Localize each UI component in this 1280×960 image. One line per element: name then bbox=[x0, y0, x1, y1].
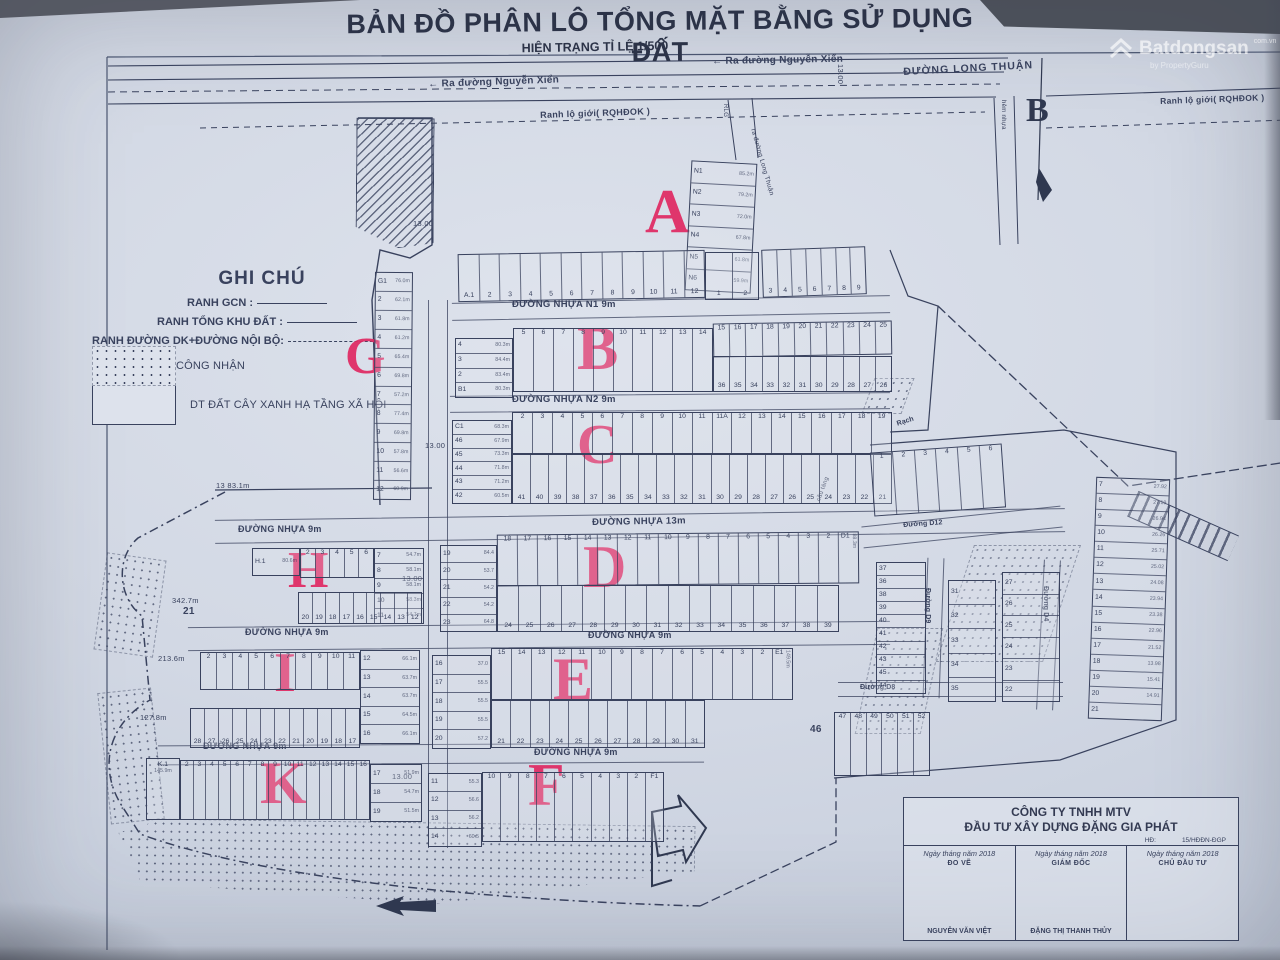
legend-swatch-cay-xanh: DT ĐẤT CÂY XANH HẠ TẦNG XÃ HỘI bbox=[92, 385, 422, 425]
lot-number: 19 bbox=[878, 414, 886, 421]
lot-number: N1 bbox=[694, 168, 703, 175]
lot-number: 8 bbox=[581, 330, 585, 337]
lot-number: F1 bbox=[650, 774, 658, 781]
lot-cell: 8 bbox=[698, 534, 718, 584]
lot-number: 7 bbox=[726, 535, 730, 542]
lot-cell: 11 bbox=[633, 329, 653, 391]
block-a-pair: 12 bbox=[705, 252, 759, 300]
lot-cell: 6 bbox=[593, 413, 613, 453]
lot-area: 73.3m bbox=[494, 452, 509, 457]
block-c-bottom: 4140393837363534333231302928272625242322… bbox=[512, 454, 892, 504]
lot-area: 64.8 bbox=[484, 620, 494, 625]
lot-number: 23 bbox=[847, 323, 855, 330]
lot-number: 10 bbox=[1097, 530, 1105, 537]
lot-area: 60.9m bbox=[393, 487, 408, 492]
lot-number: 27 bbox=[614, 739, 622, 746]
lot-cell: 30 bbox=[626, 586, 647, 631]
lot-cell: 39 bbox=[818, 586, 838, 631]
east-grid-a: 37363839404142434544 bbox=[876, 562, 926, 694]
lot-number: 2 bbox=[760, 650, 764, 657]
lot-number: 12 bbox=[309, 762, 317, 769]
lot-number: 33 bbox=[696, 623, 704, 630]
lot-number: 9 bbox=[631, 290, 635, 297]
lot-cell: 15 bbox=[367, 593, 381, 623]
lot-number: 20 bbox=[1092, 691, 1100, 698]
lot-cell: 29 bbox=[647, 701, 666, 747]
lot-cell: 38 bbox=[796, 586, 817, 631]
lot-number: 10 bbox=[488, 774, 496, 781]
lot-cell: 26 bbox=[876, 357, 891, 391]
signature-role: GIÁM ĐỐC bbox=[1052, 860, 1091, 867]
signature-col-giam-doc: Ngày tháng năm 2018 GIÁM ĐỐC ĐẶNG THỊ TH… bbox=[1016, 846, 1128, 940]
lot-cell: 31 bbox=[795, 357, 811, 391]
map-title: BẢN ĐỒ PHÂN LÔ TỔNG MẶT BẰNG SỬ DỤNG ĐẤT bbox=[330, 3, 991, 72]
lot-cell: 49 bbox=[867, 713, 883, 775]
lot-number: 17 bbox=[349, 739, 357, 746]
watermark-domain: com.vn bbox=[1254, 38, 1277, 45]
lot-cell: 877.4m bbox=[375, 405, 411, 424]
lot-cell: 19 bbox=[313, 593, 327, 623]
lot-number: 10 bbox=[376, 449, 384, 456]
lot-number: 2 bbox=[521, 414, 525, 421]
lot-number: B1 bbox=[458, 387, 466, 394]
label-hem-nhua: hẻm nhựa bbox=[1000, 100, 1006, 130]
lot-cell: 17 bbox=[346, 709, 359, 747]
lot-number: 40 bbox=[536, 495, 544, 502]
lot-cell: 3 bbox=[217, 653, 233, 689]
lot-number: 38 bbox=[803, 623, 811, 630]
hatched-parcel bbox=[355, 118, 434, 249]
lot-area: 61.8m bbox=[395, 317, 410, 322]
lot-cell: 3 bbox=[500, 254, 521, 300]
lot-number: 20 bbox=[798, 324, 806, 331]
lot-number: 19 bbox=[435, 717, 443, 724]
lot-number: 11 bbox=[431, 779, 438, 786]
lot-number: 2 bbox=[306, 550, 310, 557]
lot-number: 33 bbox=[951, 638, 959, 645]
lot-number: 3 bbox=[616, 774, 620, 781]
lot-area: 66.1m bbox=[402, 657, 417, 662]
lot-area: 84.4m bbox=[495, 358, 510, 363]
lot-cell: 14 bbox=[332, 761, 345, 819]
lot-area: 85.2m bbox=[739, 171, 754, 177]
lot-number: 38 bbox=[879, 592, 887, 599]
lot-cell: 25 bbox=[569, 701, 588, 747]
lot-number: 5 bbox=[254, 654, 258, 661]
lot-number: 23 bbox=[264, 739, 272, 746]
lot-area: 71.2m bbox=[494, 480, 509, 485]
lot-number: 35 bbox=[626, 495, 634, 502]
lot-cell: 27 bbox=[205, 709, 219, 747]
lot-number: 3 bbox=[508, 292, 512, 299]
lot-cell: 1751.9m bbox=[371, 765, 421, 784]
lot-number: 50 bbox=[886, 714, 894, 721]
signature-role: ĐO VẼ bbox=[947, 860, 971, 867]
lot-number: 46 bbox=[455, 438, 463, 445]
lot-cell: 24 bbox=[247, 709, 261, 747]
lot-number: 12 bbox=[738, 414, 746, 421]
lot-cell: 12 bbox=[618, 534, 638, 584]
lot-number: 13 bbox=[538, 650, 546, 657]
lot-number: 14 bbox=[778, 414, 786, 421]
lot-area: 83.4m bbox=[495, 373, 510, 378]
lot-area: 80.3m bbox=[495, 343, 510, 348]
lot-cell: 35 bbox=[732, 586, 753, 631]
lot-cell: 32 bbox=[779, 357, 795, 391]
lot-area: 54.7m bbox=[404, 790, 419, 795]
lot-cell: 30 bbox=[712, 455, 730, 503]
lot-number: 15 bbox=[363, 712, 371, 719]
lot-cell: 6 bbox=[673, 649, 693, 699]
lot-number: 11 bbox=[644, 535, 651, 542]
lot-number: 9 bbox=[857, 286, 861, 293]
block-i-right: 1266.1m1363.7m1463.7m1564.5m1666.1m bbox=[360, 650, 420, 744]
lot-area: 14.91 bbox=[1146, 693, 1159, 699]
block-f-row: 1098765432F1 bbox=[482, 772, 664, 842]
lot-number: 29 bbox=[611, 623, 619, 630]
lot-area: 55.5 bbox=[478, 681, 488, 686]
lot-number: 11A bbox=[716, 414, 728, 421]
lot-number: 17 bbox=[435, 680, 443, 687]
lot-cell: 27 bbox=[766, 455, 784, 503]
lot-cell: 2057.2 bbox=[433, 730, 490, 748]
lot-cell: 9 bbox=[850, 247, 865, 293]
lot-cell: 14 bbox=[578, 535, 598, 585]
lot-number: 19 bbox=[315, 615, 323, 622]
lot-number: G1 bbox=[378, 278, 387, 285]
lot-number: 13 bbox=[363, 675, 371, 682]
street-label-9m-2: ĐƯỜNG NHỰA 9m bbox=[245, 627, 329, 637]
lot-number: 1 bbox=[717, 291, 721, 298]
block-c-left: C168.3m4667.9m4573.3m4471.8m4371.2m4260.… bbox=[452, 420, 512, 504]
lot-number: 18 bbox=[1093, 659, 1101, 666]
lot-number: 35 bbox=[951, 686, 959, 693]
lot-number: D1 bbox=[841, 534, 850, 541]
lot-cell: 11 bbox=[693, 413, 713, 453]
lot-number: 9 bbox=[318, 654, 322, 661]
lot-cell: 34 bbox=[949, 654, 995, 678]
lot-cell: 24 bbox=[498, 586, 519, 631]
lot-number: 21 bbox=[497, 739, 505, 746]
lot-number: 8 bbox=[842, 286, 846, 293]
lot-cell: 21 bbox=[1089, 703, 1161, 721]
lot-number: 6 bbox=[270, 654, 274, 661]
lot-cell: 15 bbox=[792, 413, 812, 453]
lot-number: 30 bbox=[632, 623, 640, 630]
lot-cell: 23 bbox=[1003, 659, 1059, 681]
lot-cell: 2053.7 bbox=[441, 563, 496, 580]
lot-number: 12 bbox=[376, 487, 384, 494]
lot-number: N4 bbox=[690, 233, 699, 240]
lot-cell: 14 bbox=[693, 329, 712, 391]
lot-number: 21 bbox=[815, 324, 823, 331]
lot-cell: 16 bbox=[354, 593, 368, 623]
lot-number: 12 bbox=[659, 330, 667, 337]
lot-number: 4 bbox=[335, 550, 339, 557]
lot-number: 29 bbox=[734, 495, 742, 502]
lot-cell: 33 bbox=[949, 629, 995, 653]
lot-area: 53.7 bbox=[484, 569, 494, 574]
block-i-top: 234567891011 bbox=[200, 652, 360, 690]
lot-cell: 52 bbox=[914, 713, 929, 775]
lot-cell: 22 bbox=[1003, 681, 1059, 702]
lot-area: 67.9m bbox=[494, 439, 509, 444]
lot-number: 4 bbox=[720, 650, 724, 657]
lot-cell: 858.1m bbox=[375, 564, 423, 579]
lot-number: 8 bbox=[1098, 498, 1102, 505]
lot-cell: 28 bbox=[191, 709, 205, 747]
lot-number: 7 bbox=[286, 654, 290, 661]
block-e-left: 1637.01755.51855.51955.52057.2 bbox=[432, 655, 491, 749]
lot-cell: 22 bbox=[827, 322, 844, 354]
lot-cell: 24 bbox=[1003, 638, 1059, 660]
lot-number: 28 bbox=[752, 495, 760, 502]
lot-number: 45 bbox=[455, 452, 463, 459]
lot-number: 7 bbox=[561, 330, 565, 337]
lot-number: 2 bbox=[458, 372, 462, 379]
lot-cell: 31 bbox=[693, 455, 711, 503]
lot-number: 9 bbox=[1098, 514, 1102, 521]
lot-number: 13 bbox=[758, 414, 766, 421]
lot-cell: 565.4m bbox=[375, 349, 411, 368]
lot-cell: 37 bbox=[585, 455, 603, 503]
lot-cell: 2 bbox=[201, 653, 217, 689]
lot-number: 27 bbox=[1005, 580, 1013, 587]
lot-number: 6 bbox=[746, 534, 750, 541]
lot-number: 44 bbox=[455, 466, 463, 473]
block-e-top: 15141312111098765432E1149.5m bbox=[491, 648, 793, 700]
lot-cell: 8 bbox=[574, 329, 594, 391]
lot-area: 56.2 bbox=[469, 816, 479, 821]
lot-number: 7 bbox=[660, 650, 664, 657]
lot-number: 19 bbox=[782, 324, 790, 331]
lot-number: 43 bbox=[455, 479, 463, 486]
lot-number: 22 bbox=[278, 739, 286, 746]
signature-col-do-ve: Ngày tháng năm 2018 ĐO VẼ NGUYỄN VĂN VIỆ… bbox=[904, 846, 1016, 940]
lot-cell: 27 bbox=[608, 701, 627, 747]
lot-cell: 1637.0 bbox=[433, 656, 490, 675]
lot-cell: 7 bbox=[582, 253, 603, 299]
lot-number: 5 bbox=[766, 534, 770, 541]
lot-number: 7 bbox=[377, 553, 381, 560]
lot-cell: 16 bbox=[730, 324, 747, 356]
lot-number: 37 bbox=[590, 495, 598, 502]
lot-cell: 32 bbox=[669, 586, 690, 631]
lot-cell: 1260.9m bbox=[374, 481, 410, 499]
lot-area: 26.26 bbox=[1152, 533, 1165, 539]
lot-cell: 50 bbox=[882, 713, 898, 775]
lot-cell: 5 bbox=[249, 653, 265, 689]
lot-number: 15 bbox=[498, 650, 506, 657]
signature-date: Ngày tháng năm 2018 bbox=[1035, 849, 1107, 858]
signature-date: Ngày tháng năm 2018 bbox=[923, 849, 995, 858]
lot-cell: 16 bbox=[812, 413, 832, 453]
block-b-mid: 567891011121314 bbox=[513, 328, 713, 392]
lot-number: 24 bbox=[250, 739, 258, 746]
lot-area: 64.5m bbox=[402, 713, 417, 718]
lot-number: 41 bbox=[518, 495, 526, 502]
lot-cell: K.1145.9m bbox=[147, 759, 179, 819]
lot-area: 72.0m bbox=[737, 214, 752, 220]
lot-number: 6 bbox=[570, 291, 574, 298]
label-ra-nguyen-xien-2: ← Ra đường Nguyễn Xiển bbox=[428, 74, 559, 90]
lot-cell: 13 bbox=[752, 413, 772, 453]
lot-number: 11 bbox=[348, 654, 355, 661]
lot-area: 57.2m bbox=[394, 393, 409, 398]
lot-number: 26 bbox=[880, 383, 888, 390]
lot-cell: 361.8m bbox=[375, 311, 411, 330]
lot-number: 7 bbox=[248, 762, 252, 769]
lot-cell: 17 bbox=[518, 535, 538, 585]
lot-number: 8 bbox=[302, 654, 306, 661]
lot-cell: 11 bbox=[572, 649, 592, 699]
lot-cell: 51 bbox=[898, 713, 914, 775]
lot-number: 14 bbox=[584, 536, 592, 543]
scanned-map-photo: BẢN ĐỒ PHÂN LÔ TỔNG MẶT BẰNG SỬ DỤNG ĐẤT… bbox=[0, 0, 1280, 960]
lot-number: 3 bbox=[321, 550, 325, 557]
lot-number: 7 bbox=[544, 774, 548, 781]
parcel-21-number: 21 bbox=[183, 606, 195, 617]
lot-area: 58.1m bbox=[406, 583, 421, 588]
label-ra-nguyen-xien-1: ← Ra đường Nguyễn Xiển bbox=[712, 54, 843, 67]
street-label-13m: ĐƯỜNG NHỰA 13m bbox=[592, 515, 686, 528]
lot-cell: 2 bbox=[819, 533, 839, 583]
lot-number: 36 bbox=[760, 623, 768, 630]
lot-cell: 36 bbox=[603, 455, 621, 503]
lot-cell: 8 bbox=[602, 252, 623, 298]
lot-number: 41 bbox=[879, 631, 887, 638]
lot-number: 13 bbox=[322, 762, 330, 769]
lot-cell: 3 bbox=[194, 761, 207, 819]
lot-cell: 3 bbox=[762, 250, 778, 296]
lot-number: 4 bbox=[529, 292, 533, 299]
lot-number: 9 bbox=[377, 583, 381, 590]
lot-cell: 11 bbox=[344, 653, 359, 689]
lot-cell: 3 bbox=[533, 413, 553, 453]
lot-cell: 2 bbox=[753, 649, 773, 699]
lot-cell: 21 bbox=[492, 701, 511, 747]
lot-cell: 13 bbox=[532, 649, 552, 699]
lot-number: 3 bbox=[923, 451, 927, 458]
lot-number: 3 bbox=[806, 534, 810, 541]
lot-number: 5 bbox=[377, 354, 381, 361]
lot-cell: 6 bbox=[739, 533, 759, 583]
lot-number: 18 bbox=[858, 414, 866, 421]
lot-area: 67.8m bbox=[736, 236, 751, 242]
lot-number: 23 bbox=[443, 620, 451, 627]
lot-number: 17 bbox=[343, 615, 351, 622]
lot-cell: 8 bbox=[519, 773, 537, 841]
lot-cell: 9 bbox=[623, 252, 644, 298]
lot-cell: 12 bbox=[408, 593, 421, 623]
lot-cell: 17 bbox=[340, 593, 354, 623]
signature-role: CHỦ ĐẦU TƯ bbox=[1159, 860, 1207, 867]
lot-number: 25 bbox=[575, 739, 583, 746]
lot-number: 30 bbox=[672, 739, 680, 746]
lot-cell: 2 bbox=[628, 773, 646, 841]
lot-cell: 22 bbox=[511, 701, 530, 747]
lot-cell: 7 bbox=[821, 248, 837, 294]
lot-number: 14 bbox=[699, 330, 707, 337]
lot-area: 76.0m bbox=[395, 279, 410, 284]
lot-cell: 6 bbox=[359, 549, 373, 577]
lot-area: 69.8m bbox=[394, 374, 409, 379]
lot-cell: 14 bbox=[381, 593, 395, 623]
lot-number: 4 bbox=[458, 342, 462, 349]
lot-cell: 35 bbox=[949, 678, 995, 701]
lot-number: 22 bbox=[443, 602, 451, 609]
lot-number: 49 bbox=[870, 714, 878, 721]
lot-area: 37.0 bbox=[478, 662, 488, 667]
lot-area: 88.3m bbox=[851, 533, 856, 548]
lot-cell: 29 bbox=[605, 586, 626, 631]
lot-number: 4 bbox=[238, 654, 242, 661]
lot-cell: 12 bbox=[653, 329, 673, 391]
lot-cell: 1855.5 bbox=[433, 693, 490, 712]
lot-area: 79.2m bbox=[738, 193, 753, 199]
lot-area: 27.92 bbox=[1154, 485, 1167, 491]
lot-cell: 6 bbox=[265, 653, 281, 689]
lot-number: 18 bbox=[373, 790, 381, 797]
lot-cell: B180.3m bbox=[456, 383, 512, 397]
lot-cell: 480.3m bbox=[456, 339, 512, 354]
lot-number: 31 bbox=[951, 589, 959, 596]
lot-cell: 43 bbox=[877, 655, 925, 668]
watermark-house-icon bbox=[1108, 36, 1134, 60]
lot-number: 11 bbox=[297, 762, 304, 769]
lot-cell: 2 bbox=[479, 254, 500, 300]
lot-cell: 5 bbox=[759, 533, 779, 583]
dotted-area-left-1 bbox=[93, 552, 166, 657]
lot-number: 18 bbox=[504, 536, 512, 543]
lot-cell: 5 bbox=[219, 761, 232, 819]
lot-cell: 12 bbox=[684, 251, 704, 297]
lot-cell: E1149.5m bbox=[773, 649, 792, 699]
lot-cell: 4 bbox=[520, 254, 541, 300]
lot-number: 27 bbox=[770, 495, 778, 502]
watermark-brand: Batdongsan bbox=[1139, 39, 1249, 58]
photo-dark-corner-left bbox=[0, 0, 360, 18]
lot-cell: 4 bbox=[233, 653, 249, 689]
lot-cell: 1951.5m bbox=[371, 803, 421, 821]
lot-area: 68.3m bbox=[494, 425, 509, 430]
lot-number: 36 bbox=[879, 579, 887, 586]
lot-number: 7 bbox=[590, 291, 594, 298]
lot-area: 55.5 bbox=[478, 718, 488, 723]
lot-number: 4 bbox=[377, 335, 381, 342]
lot-number: 30 bbox=[716, 495, 724, 502]
parcel-46-number: 46 bbox=[810, 724, 822, 735]
lot-number: 12 bbox=[558, 650, 566, 657]
lot-cell: 4667.9m bbox=[453, 435, 511, 449]
street-label-n2: ĐƯỜNG NHỰA N2 9m bbox=[512, 394, 616, 405]
lot-number: 10 bbox=[284, 762, 292, 769]
lot-number: 19 bbox=[1092, 675, 1100, 682]
photo-edge-shadow-bottom-left bbox=[0, 890, 260, 960]
lot-cell: 25 bbox=[233, 709, 247, 747]
lot-number: 36 bbox=[718, 383, 726, 390]
lot-cell: 1 bbox=[706, 253, 733, 299]
lot-area: 57.8m bbox=[394, 450, 409, 455]
lot-cell: 37 bbox=[775, 586, 796, 631]
lot-number: 1 bbox=[880, 454, 884, 461]
lot-area: 145.9m bbox=[154, 769, 172, 774]
lot-cell: 11 bbox=[664, 251, 685, 297]
east-bottom-row: 474849505152 bbox=[834, 712, 930, 776]
lot-cell: 4 bbox=[553, 413, 573, 453]
lot-number: 27 bbox=[208, 739, 216, 746]
lot-number: 32 bbox=[951, 613, 959, 620]
